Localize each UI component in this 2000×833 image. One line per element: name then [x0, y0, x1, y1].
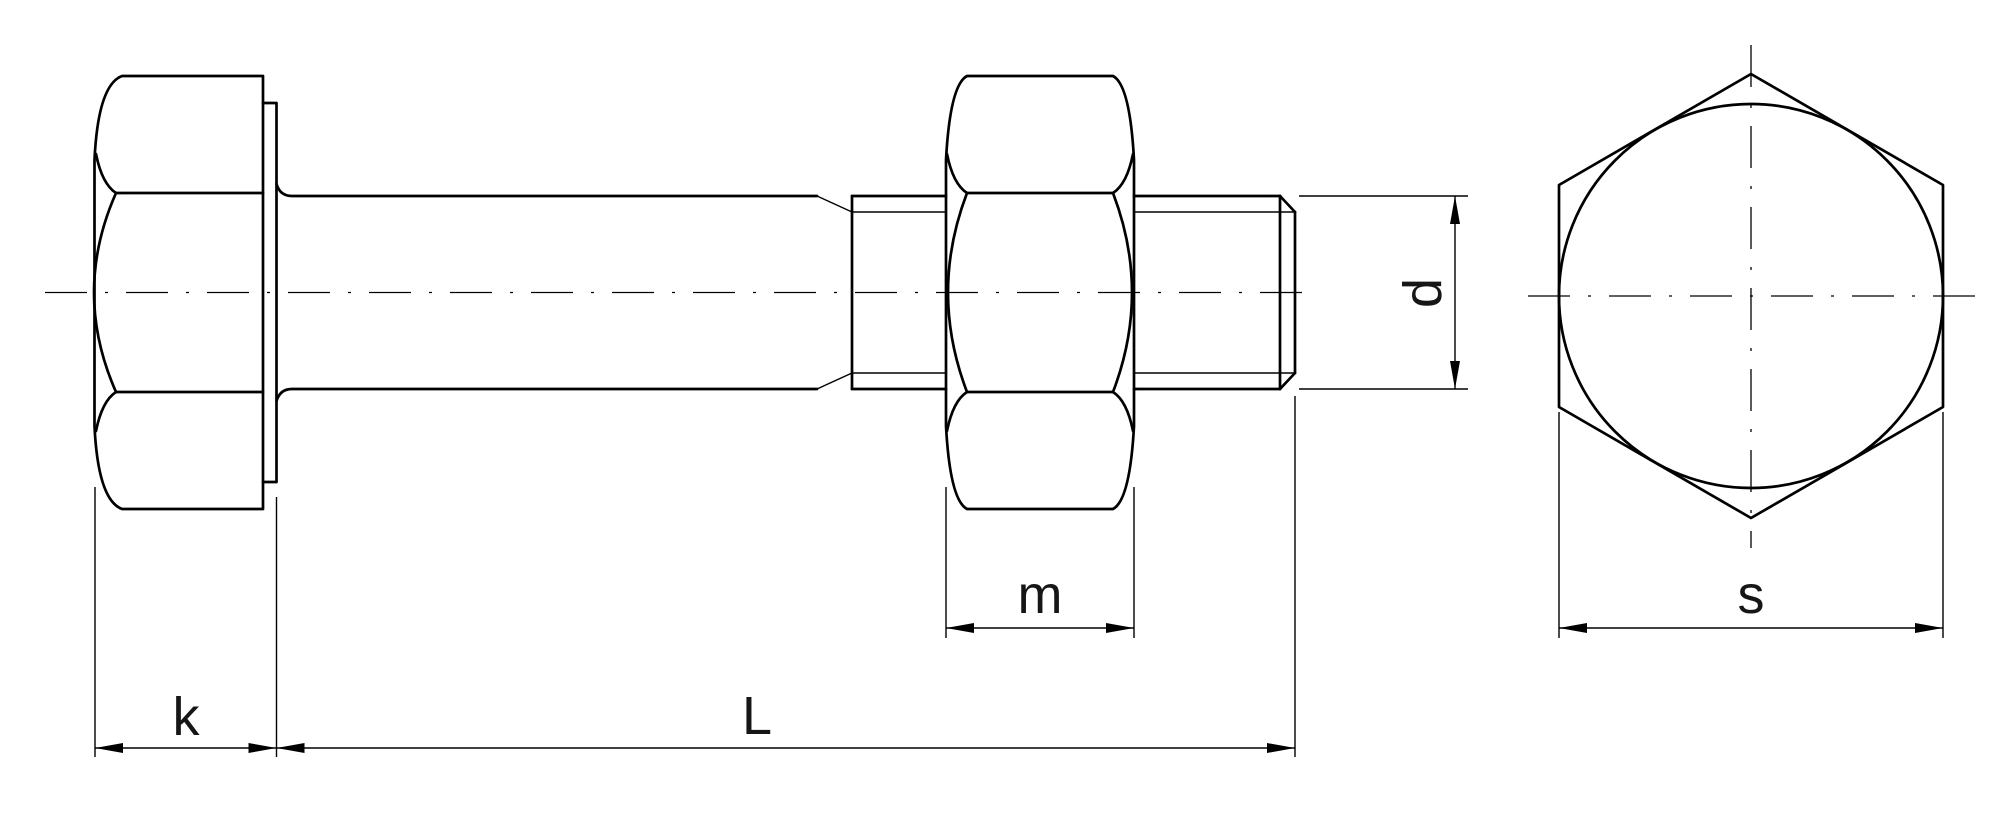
- dimension-label-s: s: [1738, 565, 1765, 625]
- dimensions: k L m: [95, 196, 1943, 757]
- dimension-s: s: [1559, 412, 1943, 638]
- thread-runout-line-bottom: [817, 373, 852, 389]
- bolt-side-view: [45, 76, 1320, 509]
- nut-chamfer-arc-bottom-right: [1113, 392, 1133, 431]
- nut-chamfer-arc-top-right: [1113, 154, 1133, 193]
- thread-runout-line-top: [817, 196, 852, 212]
- shank-top-line-with-fillet: [277, 184, 818, 196]
- dimension-label-k: k: [173, 687, 201, 747]
- m-arrow-right: [1106, 623, 1134, 633]
- bolt-and-nut-engineering-drawing: k L m: [0, 0, 2000, 833]
- L-arrow-right: [1267, 743, 1295, 753]
- dimension-label-m: m: [1018, 565, 1063, 625]
- m-arrow-left: [946, 623, 974, 633]
- head-chamfer-arc-top: [96, 154, 116, 193]
- dimension-L: L: [277, 396, 1296, 757]
- dimension-label-d: d: [1393, 278, 1453, 308]
- dimension-label-L: L: [742, 686, 772, 746]
- hex-head-side-view: [94, 76, 277, 509]
- k-arrow-left: [95, 743, 123, 753]
- s-arrow-left: [1559, 623, 1587, 633]
- dimension-d: d: [1299, 196, 1468, 389]
- dimension-k: k: [95, 487, 277, 757]
- end-chamfer-bottom: [1280, 373, 1295, 389]
- L-arrow-left: [277, 743, 305, 753]
- d-arrow-top: [1450, 196, 1460, 224]
- s-arrow-right: [1915, 623, 1943, 633]
- nut-chamfer-arc-bottom-left: [947, 392, 967, 431]
- drawing-sheet: k L m: [0, 0, 2000, 833]
- shank-bottom-line-with-fillet: [277, 389, 818, 401]
- k-arrow-right: [249, 743, 277, 753]
- end-chamfer-top: [1280, 196, 1295, 212]
- nut-chamfer-arc-top-left: [947, 154, 967, 193]
- d-arrow-bottom: [1450, 361, 1460, 389]
- bolt-end-view: [1528, 45, 1976, 548]
- head-chamfer-arc-bottom: [96, 392, 116, 431]
